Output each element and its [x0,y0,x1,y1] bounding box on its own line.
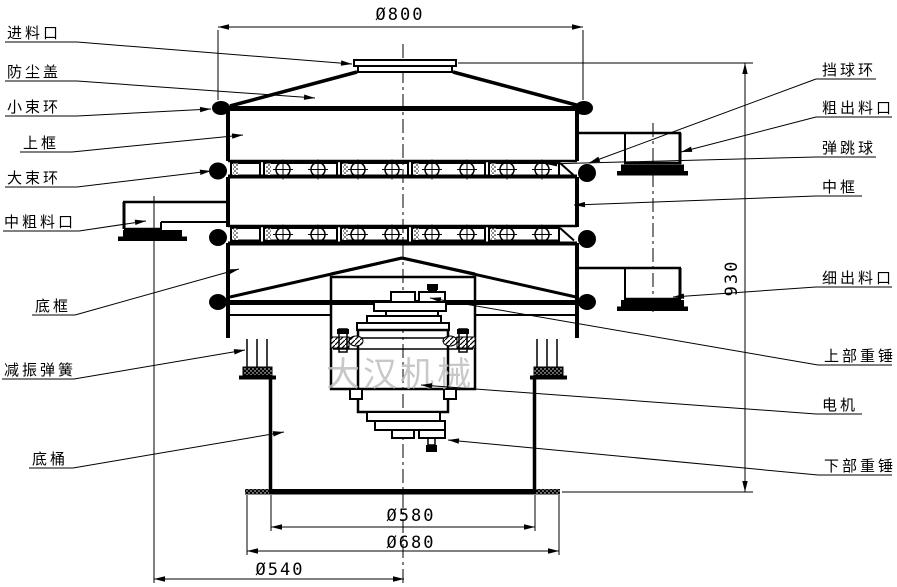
upper-weight-plate [374,302,446,311]
label-motor: 电机 [822,396,858,414]
clamp-ring-right-2 [578,230,596,248]
label-upper-weight: 上部重锤 [824,347,896,365]
label-upper-frame: 上框 [23,134,59,152]
feed-inlet-collar [358,66,452,72]
large-clamp-ring-left-2 [209,229,227,246]
dim-base-outer: Ø680 [387,533,436,553]
label-coarse-outlet: 粗出料口 [822,99,894,117]
large-clamp-ring-left [209,163,227,180]
watermark: 大汉机械 [326,355,474,395]
drawing-svg: 大汉机械 Ø800 930 Ø580 Ø680 Ø540 [0,0,897,587]
ball-stop-ring-right [578,164,596,182]
label-fine-outlet: 细出料口 [822,269,894,287]
label-small-clamp-ring: 小束环 [7,98,61,116]
screen-deck-2 [209,225,596,249]
lower-weight-bolt [426,445,437,452]
label-ball-stop-ring: 挡球环 [822,61,876,79]
label-mid-coarse-outlet: 中粗料口 [4,213,76,231]
label-bottom-barrel: 底桶 [32,450,68,468]
label-lower-weight: 下部重锤 [824,457,896,475]
label-damping-spring: 减振弹簧 [4,361,76,379]
dim-base-inner: Ø580 [387,506,436,526]
label-large-clamp-ring: 大束环 [7,169,61,187]
dim-overall-height: 930 [722,260,742,297]
label-bottom-frame: 底框 [35,297,71,315]
lower-weight-plate [375,421,445,430]
dim-outlet-offset: Ø540 [256,560,305,580]
label-middle-frame: 中框 [822,178,858,196]
label-feed-inlet: 进料口 [7,24,61,42]
label-dust-cover: 防尘盖 [7,63,61,81]
part-labels: 进料口 防尘盖 小束环 上框 大束环 中粗料口 底框 减振弹簧 底桶 挡球环 粗… [4,24,896,475]
label-bouncing-ball: 弹跳球 [822,139,876,157]
dust-cover-left [230,72,357,106]
dim-top-diameter: Ø800 [376,5,425,25]
vibrating-sieve-engineering-drawing: 大汉机械 Ø800 930 Ø580 Ø680 Ø540 [0,0,897,587]
dust-cover-right [453,72,580,106]
